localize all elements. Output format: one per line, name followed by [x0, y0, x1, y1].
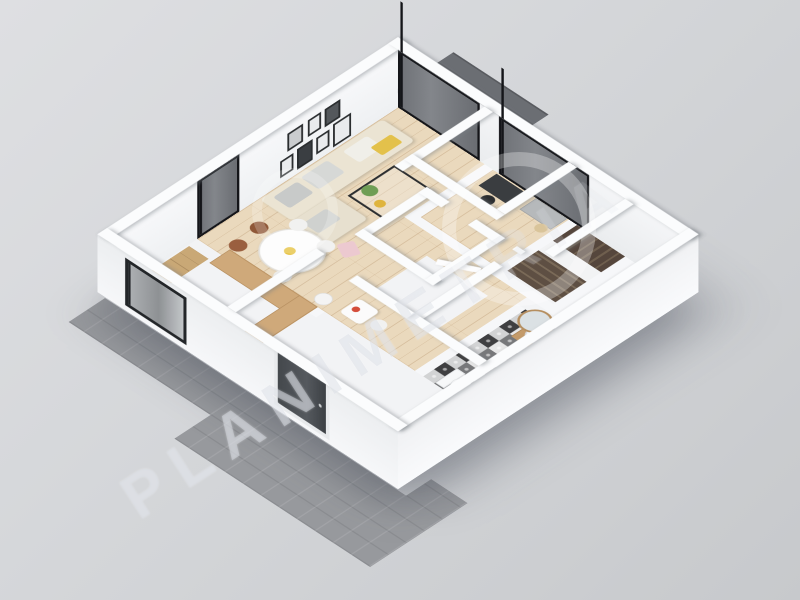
window-mullion	[400, 1, 402, 55]
facade-window-mullion	[128, 263, 130, 306]
window-mullion	[501, 68, 503, 122]
watermark-circle	[442, 152, 596, 306]
gallery-frame	[308, 112, 321, 137]
door-mullion	[200, 181, 202, 235]
window-mullion	[400, 54, 402, 108]
floor-plan-render: PLANIMETRIA	[0, 0, 800, 600]
watermark-circle	[252, 168, 338, 254]
gallery-frame	[316, 129, 329, 154]
